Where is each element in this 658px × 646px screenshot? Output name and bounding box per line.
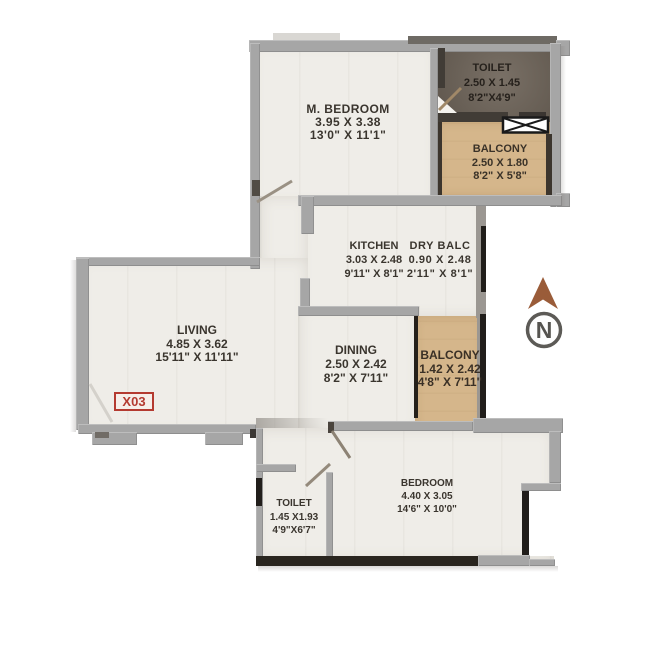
svg-text:N: N bbox=[536, 317, 553, 343]
